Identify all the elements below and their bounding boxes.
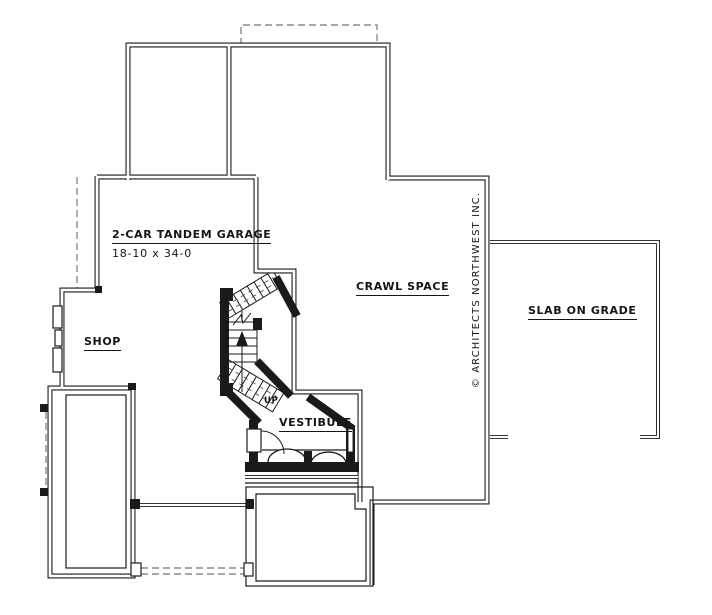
garage-dimension: 18-10 x 34-0 bbox=[112, 248, 192, 259]
copyright-text: © ARCHITECTS NORTHWEST INC. bbox=[472, 192, 482, 388]
stairs-up-label: UP bbox=[264, 397, 278, 406]
vestibule-label: VESTIBULE bbox=[279, 417, 352, 428]
vestibule-windows bbox=[268, 429, 353, 462]
walls-outer bbox=[50, 45, 487, 585]
garage-label-text: 2-CAR TANDEM GARAGE bbox=[112, 228, 271, 244]
slab-on-grade-label: SLAB ON GRADE bbox=[528, 305, 637, 316]
garage-label: 2-CAR TANDEM GARAGE bbox=[112, 229, 271, 240]
dashed-outlines bbox=[46, 25, 377, 574]
crawl-space-label: CRAWL SPACE bbox=[356, 281, 449, 292]
floor-plan-page: 2-CAR TANDEM GARAGE 18-10 x 34-0 CRAWL S… bbox=[0, 0, 712, 615]
shop-label: SHOP bbox=[84, 336, 121, 347]
